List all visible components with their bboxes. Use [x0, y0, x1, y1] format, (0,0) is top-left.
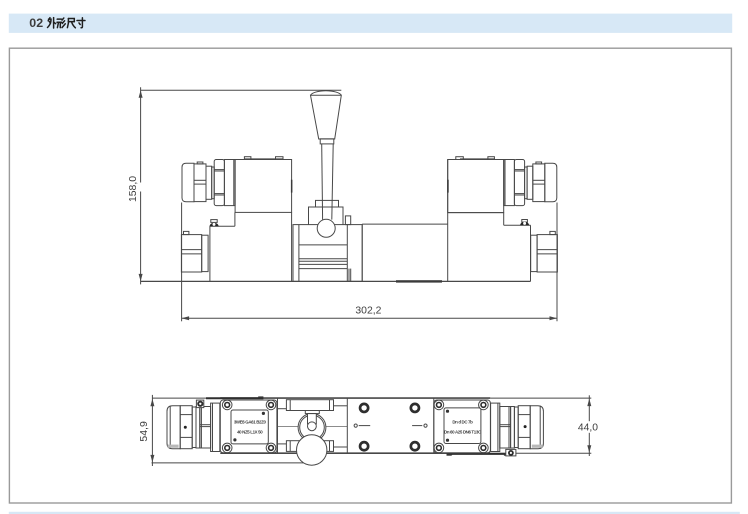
svg-text:302,2: 302,2: [355, 305, 381, 316]
svg-text:Dn d DC 7b: Dn d DC 7b: [452, 420, 473, 425]
svg-text:158,0: 158,0: [128, 176, 139, 202]
svg-text:3WE6 GA61 B2Z0: 3WE6 GA61 B2Z0: [234, 420, 267, 425]
svg-text:44,0: 44,0: [578, 422, 598, 433]
svg-text:54,9: 54,9: [138, 421, 150, 442]
svg-text:02: 02: [29, 16, 43, 30]
svg-text:Dn 60 A25 DN6 T13C: Dn 60 A25 DN6 T13C: [444, 430, 482, 435]
svg-text:40 NZ5 L1X 50: 40 NZ5 L1X 50: [237, 430, 263, 435]
